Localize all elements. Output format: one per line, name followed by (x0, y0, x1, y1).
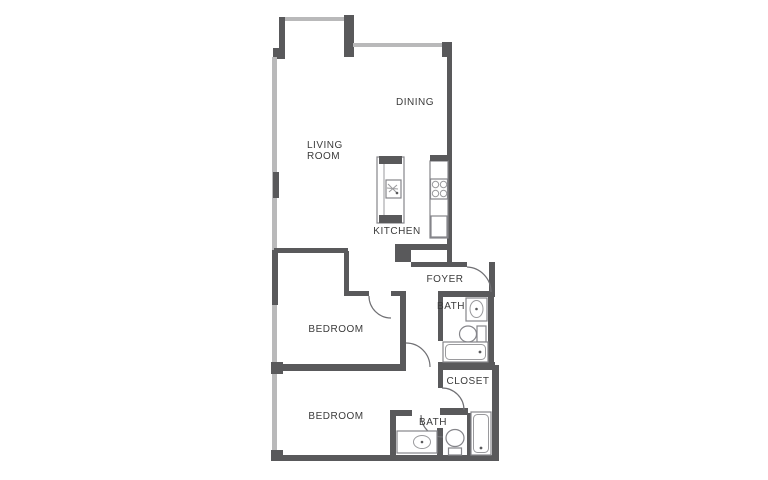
kitchen-cabinet (431, 216, 447, 237)
counter-top-cap (430, 155, 448, 161)
tub1-drain (479, 351, 482, 354)
wall-bedroom2-cap (390, 410, 412, 416)
island-top-cap (379, 156, 402, 164)
wall-foyer-top (411, 262, 467, 267)
bath-upper-label: BATH (433, 301, 469, 312)
wall-bath1-right (488, 297, 494, 367)
wall-kitchen-bottom (408, 244, 452, 250)
wall-left-jamb-mid (272, 250, 278, 305)
living-room-label: LIVING ROOM (307, 140, 343, 162)
bedroom1-door-arc (369, 296, 391, 318)
floor-plan: LIVING ROOM DINING KITCHEN FOYER BATH BE… (0, 0, 768, 480)
wall-north-pier (344, 15, 354, 57)
island-faucet-dot (396, 192, 399, 195)
wall-bedroom1-top (274, 248, 348, 253)
wall-left-jamb-upper (273, 172, 279, 198)
foyer-label: FOYER (420, 274, 470, 285)
bath-lower-label: BATH (415, 417, 451, 428)
tub2-drain (480, 447, 483, 450)
wall-bottom (274, 455, 499, 461)
toilet2-base (449, 448, 462, 455)
sink1-drain (475, 308, 478, 311)
bedroom-low-label: BEDROOM (300, 411, 372, 422)
kitchen-label: KITCHEN (367, 226, 427, 237)
toilet1-bowl-icon (460, 326, 477, 342)
entry-door-arc (467, 267, 491, 292)
wall-bedroom1-right (400, 296, 406, 370)
wall-bedroom1-step-v (344, 251, 349, 296)
living-room-label-line1: LIVING (307, 140, 343, 151)
wall-ne-pier (442, 42, 452, 57)
living-room-label-line2: ROOM (307, 151, 343, 162)
exterior-walls (271, 15, 499, 461)
wall-bath2-divider (437, 428, 443, 455)
closet-door-arc (442, 388, 464, 410)
toilet1-tank (477, 326, 486, 342)
closet-label: CLOSET (440, 376, 496, 387)
floor-plan-drawing (0, 0, 768, 480)
toilet2-bowl-icon (446, 430, 464, 447)
bedroom-mid-label: BEDROOM (300, 324, 372, 335)
wall-top-left-window (280, 17, 346, 21)
wall-bedroom2-right (390, 416, 396, 460)
wall-nw-vertical (279, 17, 285, 53)
island-bottom-cap (379, 215, 402, 223)
wall-bedroom1-step-h (344, 291, 369, 296)
wall-bath1-bottom (438, 362, 495, 370)
sink2-drain (421, 441, 424, 444)
dining-label: DINING (385, 97, 445, 108)
wall-bath1-top (438, 291, 495, 297)
wall-top-right-window (353, 43, 444, 47)
wall-bedroom-divider (274, 364, 406, 371)
bedroom2-door-arc (406, 343, 430, 367)
wall-bedroom1-door-cap (391, 291, 406, 296)
